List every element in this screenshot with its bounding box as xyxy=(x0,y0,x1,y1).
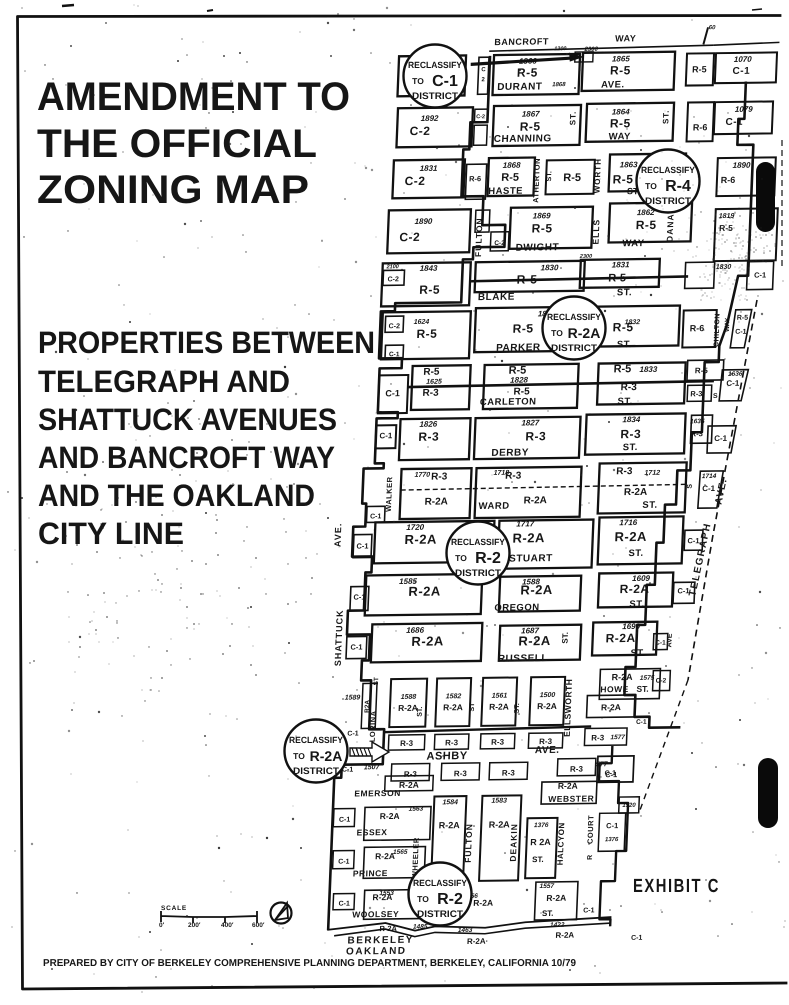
svg-text:R-2A: R-2A xyxy=(375,851,395,861)
svg-text:1582: 1582 xyxy=(445,693,461,700)
svg-text:1826: 1826 xyxy=(419,420,438,429)
svg-text:R-5: R-5 xyxy=(610,116,631,130)
svg-text:ST: ST xyxy=(373,677,380,685)
svg-text:1833: 1833 xyxy=(639,365,658,374)
svg-text:1827: 1827 xyxy=(521,418,540,427)
svg-text:R: R xyxy=(587,855,594,860)
svg-text:CITY LINE: CITY LINE xyxy=(38,516,184,551)
svg-text:R-2A: R-2A xyxy=(380,811,400,821)
svg-text:WAY: WAY xyxy=(622,238,645,249)
svg-text:C-1: C-1 xyxy=(350,642,362,651)
svg-text:R-6: R-6 xyxy=(693,122,708,132)
svg-text:TO: TO xyxy=(412,76,424,86)
svg-text:CHANNING: CHANNING xyxy=(494,133,552,145)
svg-text:ESSEX: ESSEX xyxy=(356,827,387,837)
svg-text:1831: 1831 xyxy=(612,260,631,269)
svg-text:1716: 1716 xyxy=(619,518,638,527)
svg-text:R-5: R-5 xyxy=(692,64,707,74)
svg-text:R-5: R-5 xyxy=(512,321,533,335)
svg-text:1500: 1500 xyxy=(539,692,555,699)
svg-text:1589: 1589 xyxy=(344,694,360,701)
svg-text:C-1: C-1 xyxy=(370,513,382,520)
svg-text:C-1: C-1 xyxy=(606,821,618,830)
svg-text:PARKER: PARKER xyxy=(496,342,541,354)
svg-text:BLAKE: BLAKE xyxy=(478,292,515,303)
svg-text:COURT: COURT xyxy=(585,815,595,844)
svg-text:ST.: ST. xyxy=(617,287,633,298)
svg-text:AVE.: AVE. xyxy=(601,79,625,90)
svg-text:1583: 1583 xyxy=(491,798,507,805)
svg-text:R-3: R-3 xyxy=(616,466,633,477)
svg-text:AMENDMENT TO: AMENDMENT TO xyxy=(37,75,350,119)
svg-text:DISTRICT: DISTRICT xyxy=(293,766,339,777)
svg-text:SCALE: SCALE xyxy=(161,905,187,912)
svg-text:200′: 200′ xyxy=(188,922,201,929)
svg-text:R-3: R-3 xyxy=(454,769,468,778)
svg-text:TO: TO xyxy=(551,328,563,338)
svg-text:1830: 1830 xyxy=(716,264,732,271)
svg-text:1717: 1717 xyxy=(516,519,535,528)
svg-text:R-3: R-3 xyxy=(445,738,459,747)
svg-text:R 2A: R 2A xyxy=(530,837,551,847)
svg-text:OREGON: OREGON xyxy=(494,602,540,614)
svg-text:ST.: ST. xyxy=(629,599,645,610)
svg-text:R-3: R-3 xyxy=(570,765,584,774)
svg-text:AND THE OAKLAND: AND THE OAKLAND xyxy=(38,478,315,513)
svg-text:R-5: R-5 xyxy=(612,320,633,334)
svg-text:WARD: WARD xyxy=(478,501,509,512)
svg-text:R-5: R-5 xyxy=(563,172,581,184)
svg-text:C-2: C-2 xyxy=(388,323,400,330)
svg-text:C-1: C-1 xyxy=(732,66,750,77)
svg-text:R-5: R-5 xyxy=(519,119,540,133)
svg-text:C-2: C-2 xyxy=(387,276,399,283)
svg-text:C-1: C-1 xyxy=(636,719,647,726)
svg-text:R-2A: R-2A xyxy=(523,495,547,506)
svg-text:TO: TO xyxy=(293,751,305,761)
svg-text:R-2A: R-2A xyxy=(614,529,647,544)
svg-text:C-2: C-2 xyxy=(409,124,430,138)
svg-text:DEAKIN: DEAKIN xyxy=(508,823,520,862)
svg-text:C-1: C-1 xyxy=(714,434,728,443)
svg-text:WAY: WAY xyxy=(615,33,637,43)
svg-text:TO: TO xyxy=(417,894,429,904)
svg-text:R-5: R-5 xyxy=(737,315,749,322)
svg-text:ST.: ST. xyxy=(628,548,644,559)
svg-text:1070: 1070 xyxy=(734,55,753,64)
svg-text:DISTRICT: DISTRICT xyxy=(412,91,458,102)
svg-text:RECLASSIFY: RECLASSIFY xyxy=(451,537,505,547)
svg-text:R-3: R-3 xyxy=(505,470,522,481)
svg-text:1868: 1868 xyxy=(552,81,566,88)
svg-text:WEBSTER: WEBSTER xyxy=(548,793,594,804)
svg-text:C-1: C-1 xyxy=(338,859,350,866)
svg-text:R-2A: R-2A xyxy=(489,702,509,712)
svg-text:AND BANCROFT WAY: AND BANCROFT WAY xyxy=(38,440,335,475)
svg-text:C-1: C-1 xyxy=(356,541,368,550)
svg-text:1834: 1834 xyxy=(622,415,641,424)
svg-text:R-2A: R-2A xyxy=(611,672,633,682)
svg-text:R-2A: R-2A xyxy=(439,820,461,830)
svg-text:R-2A: R-2A xyxy=(443,702,463,712)
svg-text:1843: 1843 xyxy=(420,264,439,273)
svg-text:STUART: STUART xyxy=(509,553,553,565)
svg-text:C-1: C-1 xyxy=(754,270,766,279)
svg-text:R-5: R-5 xyxy=(635,218,656,232)
svg-text:OAKLAND: OAKLAND xyxy=(346,946,407,958)
svg-text:ST.: ST. xyxy=(532,855,544,864)
svg-text:R-5: R-5 xyxy=(423,367,440,378)
svg-text:1624: 1624 xyxy=(413,319,429,326)
svg-text:2300: 2300 xyxy=(579,254,592,260)
svg-text:C-1: C-1 xyxy=(655,640,666,647)
svg-text:ST.: ST. xyxy=(542,909,554,918)
svg-text:1720: 1720 xyxy=(406,523,425,532)
svg-text:R-5: R-5 xyxy=(695,366,709,375)
svg-text:R-2A·: R-2A· xyxy=(467,937,489,946)
svg-text:1830: 1830 xyxy=(540,263,559,272)
svg-text:1864: 1864 xyxy=(612,107,631,116)
svg-text:R-2A: R-2A xyxy=(398,703,418,713)
svg-text:AVE.: AVE. xyxy=(535,745,560,756)
svg-text:C-1: C-1 xyxy=(735,329,747,336)
svg-text:C-1: C-1 xyxy=(379,431,393,440)
svg-text:1561: 1561 xyxy=(491,693,507,700)
svg-text:R-5: R-5 xyxy=(719,223,733,233)
svg-text:R-2A: R-2A xyxy=(372,892,392,902)
svg-text:ST.: ST. xyxy=(568,111,578,126)
svg-text:SHATTUCK AVENUES: SHATTUCK AVENUES xyxy=(38,402,337,437)
svg-text:C-1: C-1 xyxy=(385,388,400,398)
svg-text:EXHIBIT C: EXHIBIT C xyxy=(633,876,720,897)
svg-text:400′: 400′ xyxy=(221,922,234,929)
svg-text:R-2A: R-2A xyxy=(512,530,545,545)
svg-text:R-2A: R-2A xyxy=(558,781,578,791)
svg-text:C-2: C-2 xyxy=(476,114,485,120)
svg-text:ST.: ST. xyxy=(514,703,521,713)
svg-text:60: 60 xyxy=(709,24,717,31)
svg-text:ST.: ST. xyxy=(617,339,633,350)
svg-text:1577: 1577 xyxy=(610,734,625,741)
svg-text:DISTRICT: DISTRICT xyxy=(645,196,691,207)
svg-text:DURANT: DURANT xyxy=(497,81,543,93)
svg-text:WORTH: WORTH xyxy=(592,158,602,193)
svg-text:RECLASSIFY: RECLASSIFY xyxy=(289,735,343,745)
svg-text:1868: 1868 xyxy=(503,161,522,170)
svg-text:R-5: R-5 xyxy=(501,172,519,184)
svg-text:R-2A: R-2A xyxy=(473,898,493,908)
svg-text:R-2A: R-2A xyxy=(518,633,551,648)
svg-text:DANA: DANA xyxy=(665,213,676,242)
svg-text:C-1: C-1 xyxy=(347,730,359,737)
svg-text:S: S xyxy=(687,484,694,489)
svg-text:DISTRICT: DISTRICT xyxy=(551,343,597,354)
svg-text:1588: 1588 xyxy=(400,694,416,701)
svg-text:PROPERTIES BETWEEN: PROPERTIES BETWEEN xyxy=(38,325,375,360)
svg-text:1714: 1714 xyxy=(702,473,717,480)
svg-text:R-2A: R-2A xyxy=(310,748,343,764)
svg-text:ASHBY: ASHBY xyxy=(426,750,468,763)
svg-text:C-1: C-1 xyxy=(726,379,740,388)
svg-text:BERKELEY: BERKELEY xyxy=(347,935,414,947)
svg-text:C-1: C-1 xyxy=(338,901,350,908)
svg-text:THE OFFICIAL: THE OFFICIAL xyxy=(37,122,317,166)
svg-text:C-2: C-2 xyxy=(656,678,667,685)
svg-text:1890: 1890 xyxy=(414,217,433,226)
svg-text:RECLASSIFY: RECLASSIFY xyxy=(641,165,695,175)
svg-text:TO: TO xyxy=(645,181,657,191)
svg-text:R-3: R-3 xyxy=(418,430,439,444)
svg-text:BANCROFT: BANCROFT xyxy=(494,36,549,47)
svg-text:R-5: R-5 xyxy=(613,363,631,375)
svg-text:R-3: R-3 xyxy=(404,770,418,779)
svg-text:ZONING MAP: ZONING MAP xyxy=(37,168,309,212)
svg-text:R-2: R-2 xyxy=(475,550,501,567)
svg-text:DWIGHT: DWIGHT xyxy=(515,242,559,254)
svg-text:TELEGRAPH AND: TELEGRAPH AND xyxy=(38,364,290,399)
svg-text:R-2A: R-2A xyxy=(399,780,419,790)
svg-text:1584: 1584 xyxy=(442,799,458,806)
svg-text:R-2A: R-2A xyxy=(520,582,553,597)
svg-text:ST.: ST. xyxy=(642,500,658,511)
svg-text:R-2A: R-2A xyxy=(408,583,441,598)
svg-text:R-3: R-3 xyxy=(620,427,641,441)
svg-text:WOOLSEY: WOOLSEY xyxy=(352,909,399,920)
svg-text:PREPARED BY CITY OF BERKELEY C: PREPARED BY CITY OF BERKELEY COMPREHENSI… xyxy=(43,958,576,969)
svg-text:RECLASSIFY: RECLASSIFY xyxy=(408,60,462,70)
svg-text:R-6: R-6 xyxy=(690,323,705,333)
svg-text:R-3: R-3 xyxy=(400,739,414,748)
svg-text:R-2A: R-2A xyxy=(411,633,444,648)
svg-text:1869: 1869 xyxy=(533,211,552,220)
svg-text:2100: 2100 xyxy=(385,264,398,270)
svg-text:1563: 1563 xyxy=(409,806,424,813)
svg-text:R-2A: R-2A xyxy=(624,487,648,498)
svg-text:HASTE: HASTE xyxy=(488,186,523,197)
svg-text:ST.: ST. xyxy=(617,396,633,407)
svg-text:ST.: ST. xyxy=(622,442,638,453)
svg-text:1376: 1376 xyxy=(534,822,549,829)
svg-text:R-2A: R-2A xyxy=(404,532,437,547)
svg-text:RECLASSIFY: RECLASSIFY xyxy=(547,312,601,322)
svg-text:PRINCE: PRINCE xyxy=(353,868,389,878)
svg-text:R-2A: R-2A xyxy=(605,631,636,645)
svg-text:R-2A: R-2A xyxy=(537,701,557,711)
svg-text:R-3: R-3 xyxy=(422,388,439,399)
svg-text:C-2: C-2 xyxy=(404,174,425,188)
svg-text:ATHERTON: ATHERTON xyxy=(531,158,542,203)
svg-text:R-3: R-3 xyxy=(525,429,546,443)
svg-text:1890: 1890 xyxy=(732,161,751,170)
svg-text:CARLETON: CARLETON xyxy=(480,396,537,408)
svg-text:R-2A: R-2A xyxy=(489,819,511,829)
svg-text:R-5: R-5 xyxy=(531,221,552,235)
svg-text:1863: 1863 xyxy=(620,160,639,169)
svg-text:1865: 1865 xyxy=(612,54,631,63)
svg-text:FULTON: FULTON xyxy=(463,823,475,863)
svg-text:1892: 1892 xyxy=(421,114,440,123)
svg-text:R-3: R-3 xyxy=(591,733,605,742)
svg-text:1867: 1867 xyxy=(522,109,541,118)
svg-text:R-5: R-5 xyxy=(517,66,538,80)
svg-text:RECLASSIFY: RECLASSIFY xyxy=(413,878,467,888)
svg-text:C-1: C-1 xyxy=(583,907,595,914)
svg-text:ST: ST xyxy=(469,702,476,712)
svg-text:C-1: C-1 xyxy=(604,770,616,777)
svg-text:S: S xyxy=(713,393,718,400)
svg-text:DERBY: DERBY xyxy=(491,447,529,458)
svg-text:R-5: R-5 xyxy=(612,172,633,186)
svg-text:R-6: R-6 xyxy=(469,174,481,183)
svg-text:R-2A: R-2A xyxy=(546,893,566,903)
svg-text:ELLS: ELLS xyxy=(590,219,601,245)
svg-text:1819: 1819 xyxy=(719,213,735,220)
svg-text:C-2: C-2 xyxy=(399,230,420,244)
svg-text:1831: 1831 xyxy=(420,164,439,173)
svg-text:R-3: R-3 xyxy=(431,471,448,482)
svg-text:C-1: C-1 xyxy=(631,935,643,942)
svg-text:1770: 1770 xyxy=(414,472,430,479)
svg-text:R-5: R-5 xyxy=(419,283,440,297)
svg-text:C-1: C-1 xyxy=(432,73,458,90)
svg-text:ST.: ST. xyxy=(417,707,424,717)
svg-text:DISTRICT: DISTRICT xyxy=(417,909,463,920)
svg-text:HALCYON: HALCYON xyxy=(556,822,567,865)
svg-text:AVE.: AVE. xyxy=(332,523,343,547)
svg-text:1376: 1376 xyxy=(605,836,619,843)
svg-text:1200: 1200 xyxy=(554,46,566,52)
svg-text:R-6: R-6 xyxy=(721,175,736,185)
svg-text:EMERSON: EMERSON xyxy=(354,788,401,799)
svg-text:R-2A: R-2A xyxy=(424,496,448,507)
svg-text:R-2: R-2 xyxy=(437,891,463,908)
svg-text:RUSSELL: RUSSELL xyxy=(498,653,549,665)
svg-text:ST.: ST. xyxy=(630,648,646,659)
svg-text:AVE: AVE xyxy=(666,633,674,647)
svg-text:R-4: R-4 xyxy=(665,178,691,195)
svg-text:1625: 1625 xyxy=(426,379,442,386)
svg-text:R-3: R-3 xyxy=(491,738,505,747)
svg-text:R-3: R-3 xyxy=(502,768,516,777)
svg-text:ST.: ST. xyxy=(560,632,569,644)
svg-text:ST.: ST. xyxy=(661,109,671,124)
svg-text:R-2A: R-2A xyxy=(555,931,574,940)
svg-text:R-2A: R-2A xyxy=(568,325,601,341)
svg-text:R-3: R-3 xyxy=(690,389,702,398)
svg-text:0′: 0′ xyxy=(159,922,165,929)
svg-text:600′: 600′ xyxy=(252,922,265,929)
svg-text:R-5: R-5 xyxy=(610,63,631,77)
svg-text:C-1: C-1 xyxy=(339,817,351,824)
svg-text:TO: TO xyxy=(455,553,467,563)
svg-text:R-5: R-5 xyxy=(416,327,437,341)
svg-text:1828: 1828 xyxy=(510,375,529,384)
svg-text:ST.: ST. xyxy=(636,684,649,694)
svg-text:DISTRICT: DISTRICT xyxy=(455,568,501,579)
svg-text:1557: 1557 xyxy=(539,883,554,890)
